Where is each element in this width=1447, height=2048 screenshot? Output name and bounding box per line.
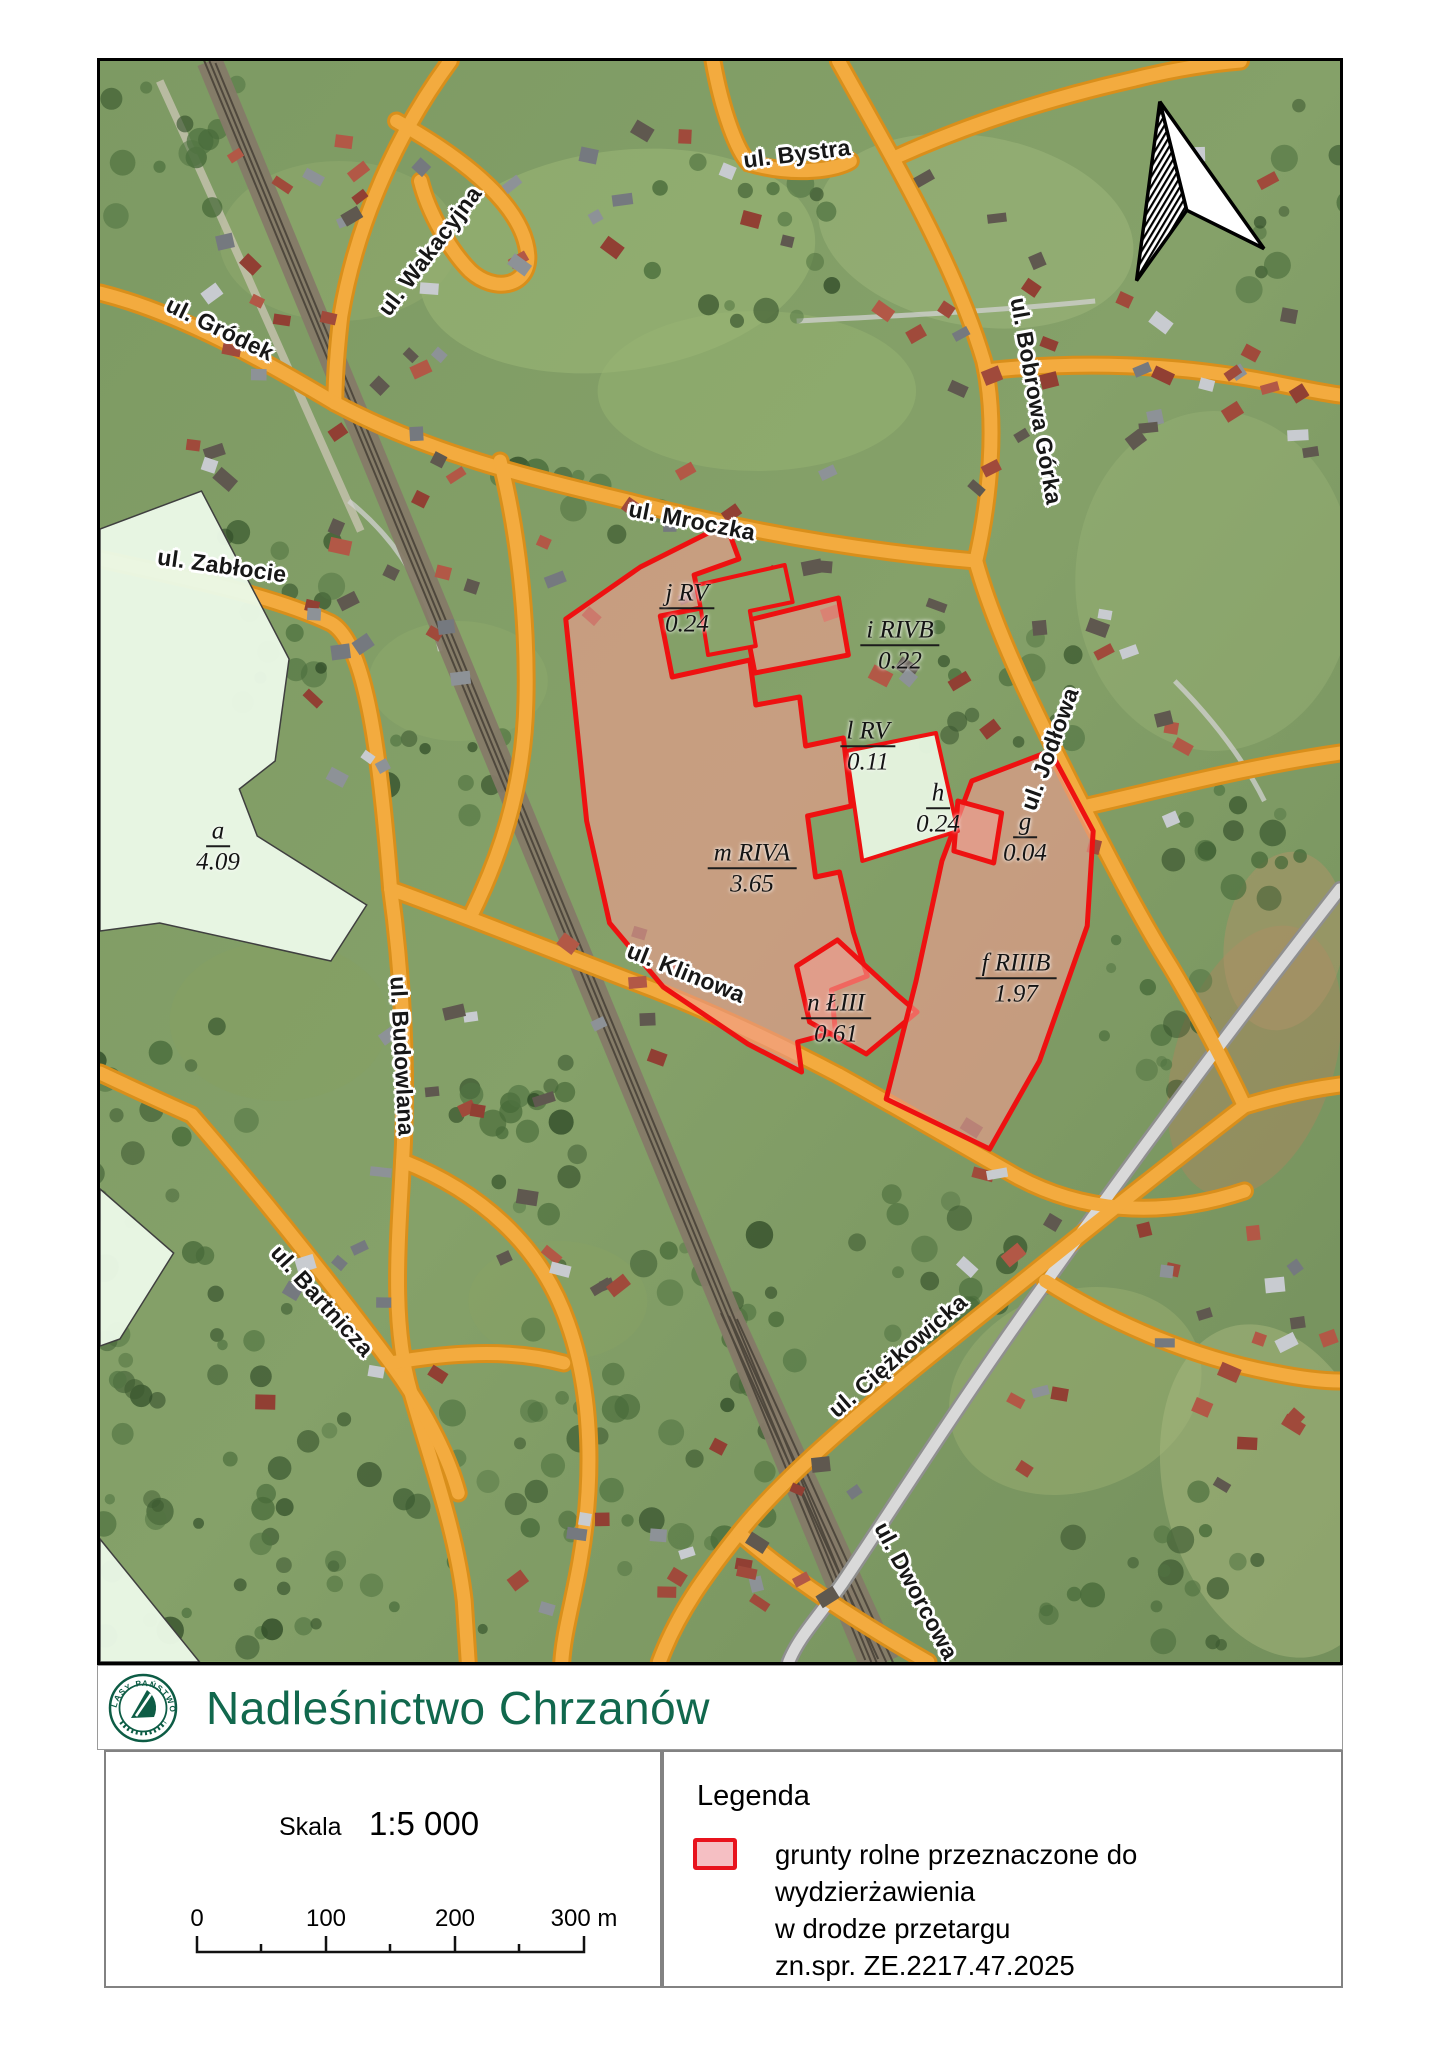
legend-title: Legenda xyxy=(697,1780,810,1813)
scale-box: Skala 1:5 000 0 100 200 300 m xyxy=(104,1750,662,1988)
parcel-code: f RIIIB xyxy=(976,950,1057,979)
page: { "page": { "title_band": { "title": "Na… xyxy=(0,0,1447,2048)
title-band: LASY PAŃSTWOWE Nadleśnictwo Chrzanów xyxy=(97,1665,1343,1750)
parcel-label-n: n ŁIII0.61 xyxy=(801,990,871,1048)
street-label-mroczka: ul. Mroczka xyxy=(626,495,757,546)
parcel-area-ha: 0.04 xyxy=(1003,839,1047,867)
page-title: Nadleśnictwo Chrzanów xyxy=(206,1681,710,1735)
parcel-area-ha: 1.97 xyxy=(976,980,1057,1008)
parcel-area-ha: 4.09 xyxy=(196,848,240,876)
parcel-code: n ŁIII xyxy=(801,990,871,1019)
street-label-bobrowa-gorka: ul. Bobrowa Górka xyxy=(1005,295,1068,506)
street-label-zablocie: ul. Zabłocie xyxy=(156,544,289,589)
street-label-ciezkowicka: ul. Ciężkowicka xyxy=(823,1289,972,1424)
parcel-area-ha: 0.61 xyxy=(801,1020,871,1048)
parcel-area-ha: 0.22 xyxy=(860,647,939,675)
legend-line-2: w drodze przetargu xyxy=(775,1910,1335,1947)
parcel-label-i: i RIVB0.22 xyxy=(860,617,939,675)
parcel-area-ha: 0.11 xyxy=(840,748,895,776)
parcel-label-m: m RIVA3.65 xyxy=(708,840,797,898)
parcel-code: a xyxy=(206,818,231,847)
parcel-area-ha: 3.65 xyxy=(708,870,797,898)
lasy-panstwowe-logo-icon: LASY PAŃSTWOWE xyxy=(108,1673,178,1743)
street-label-grodek: ul. Gródek xyxy=(162,291,279,366)
parcel-label-l: l RV0.11 xyxy=(840,718,895,776)
parcel-area-ha: 0.24 xyxy=(659,610,714,638)
street-label-dworcowa: ul. Dworcowa xyxy=(868,1518,963,1665)
parcel-area-ha: 0.24 xyxy=(916,810,960,838)
street-label-jodlowa: ul. Jodłowa xyxy=(1015,684,1084,814)
street-label-bystra: ul. Bystra xyxy=(742,134,852,174)
parcel-code: h xyxy=(926,780,951,809)
legend-parcel-swatch xyxy=(693,1838,737,1870)
legend-line-3: zn.spr. ZE.2217.47.2025 xyxy=(775,1947,1335,1984)
scalebar xyxy=(106,1752,660,1986)
parcel-label-a: a4.09 xyxy=(196,818,240,876)
legend-item-text: grunty rolne przeznaczone do wydzierżawi… xyxy=(775,1836,1335,1984)
parcel-label-g: g0.04 xyxy=(1003,809,1047,867)
parcel-code: i RIVB xyxy=(860,617,939,646)
street-label-wakacyjna: ul. Wakacyjna xyxy=(373,181,488,321)
parcel-label-h: h0.24 xyxy=(916,780,960,838)
parcel-code: l RV xyxy=(840,718,895,747)
parcel-label-f: f RIIIB1.97 xyxy=(976,950,1057,1008)
map-frame: ul. Bystraul. Wakacyjnaul. Gródekul. Bob… xyxy=(97,58,1343,1665)
street-label-klinowa: ul. Klinowa xyxy=(623,937,749,1009)
map-label-overlay: ul. Bystraul. Wakacyjnaul. Gródekul. Bob… xyxy=(100,61,1340,1662)
parcel-code: m RIVA xyxy=(708,840,797,869)
parcel-label-j: j RV0.24 xyxy=(659,580,714,638)
parcel-code: j RV xyxy=(659,580,714,609)
legend-box: Legenda grunty rolne przeznaczone do wyd… xyxy=(662,1750,1343,1988)
parcel-code: g xyxy=(1013,809,1038,838)
street-label-budowlana: ul. Budowlana xyxy=(384,976,419,1137)
street-label-bartnicza: ul. Bartnicza xyxy=(265,1240,379,1363)
legend-line-1: grunty rolne przeznaczone do wydzierżawi… xyxy=(775,1836,1335,1910)
